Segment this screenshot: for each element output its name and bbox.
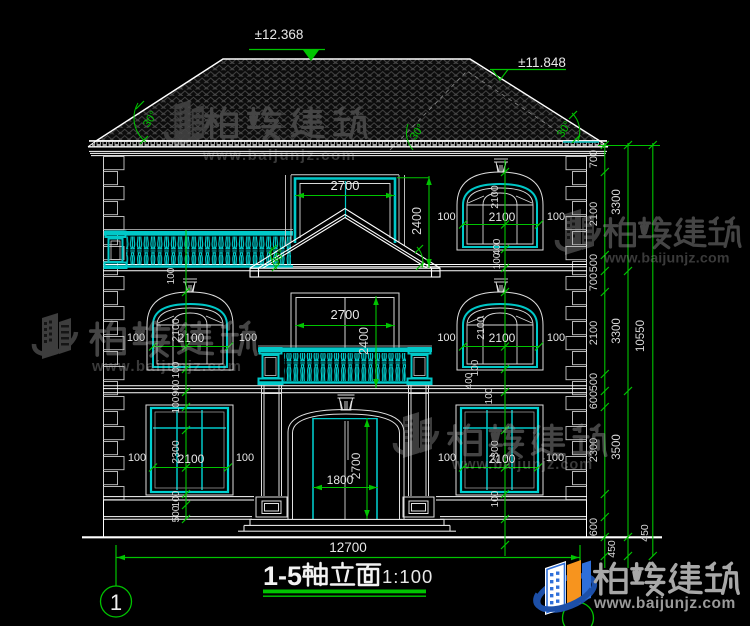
- svg-text:100: 100: [171, 490, 182, 507]
- svg-text:900: 900: [171, 379, 182, 396]
- svg-text:100: 100: [492, 252, 503, 269]
- svg-text:2400: 2400: [357, 327, 371, 355]
- svg-text:±11.848: ±11.848: [518, 55, 566, 70]
- svg-text:3300: 3300: [611, 318, 623, 344]
- svg-text:www.baijunjz.com: www.baijunjz.com: [451, 457, 593, 473]
- svg-text:10550: 10550: [635, 320, 647, 352]
- svg-text:600: 600: [588, 391, 600, 409]
- svg-text:2300: 2300: [170, 440, 182, 464]
- svg-text:100: 100: [547, 332, 565, 344]
- svg-text:100: 100: [484, 387, 495, 404]
- svg-text:2100: 2100: [489, 331, 516, 345]
- svg-text:1-5: 1-5: [263, 561, 302, 591]
- svg-text:100: 100: [166, 267, 177, 284]
- svg-text:100: 100: [236, 452, 254, 464]
- svg-text:1: 1: [110, 590, 122, 615]
- svg-text:600: 600: [588, 518, 600, 536]
- svg-text:400: 400: [464, 372, 475, 389]
- svg-text:12700: 12700: [329, 540, 367, 555]
- svg-text:2100: 2100: [588, 321, 600, 345]
- svg-text:www.baijunjz.com: www.baijunjz.com: [91, 358, 242, 375]
- svg-text:www.baijunjz.com: www.baijunjz.com: [202, 147, 356, 164]
- svg-text:±12.368: ±12.368: [255, 27, 304, 42]
- svg-text:100: 100: [490, 490, 501, 507]
- svg-text:450: 450: [639, 524, 651, 542]
- svg-text:3500: 3500: [611, 434, 623, 460]
- svg-text:100: 100: [547, 211, 565, 223]
- svg-text:100: 100: [437, 211, 455, 223]
- svg-text:2400: 2400: [410, 207, 424, 235]
- svg-text:www.baijunjz.com: www.baijunjz.com: [593, 595, 736, 612]
- svg-text:700: 700: [588, 273, 600, 291]
- svg-text:2100: 2100: [489, 210, 516, 224]
- svg-text:500: 500: [588, 373, 600, 391]
- svg-text:500: 500: [171, 505, 182, 522]
- svg-text:2100: 2100: [475, 316, 487, 340]
- svg-text:100: 100: [171, 396, 182, 413]
- svg-text:1:100: 1:100: [382, 566, 433, 587]
- svg-text:2100: 2100: [489, 185, 501, 209]
- svg-text:500: 500: [588, 254, 600, 272]
- svg-text:100: 100: [128, 452, 146, 464]
- svg-text:450: 450: [606, 540, 618, 558]
- svg-text:1800: 1800: [327, 473, 354, 487]
- svg-text:700: 700: [588, 150, 600, 168]
- svg-text:2700: 2700: [331, 307, 360, 322]
- svg-text:www.baijunjz.com: www.baijunjz.com: [603, 251, 730, 267]
- svg-text:2700: 2700: [331, 178, 360, 193]
- svg-text:100: 100: [437, 332, 455, 344]
- svg-text:3300: 3300: [611, 189, 623, 215]
